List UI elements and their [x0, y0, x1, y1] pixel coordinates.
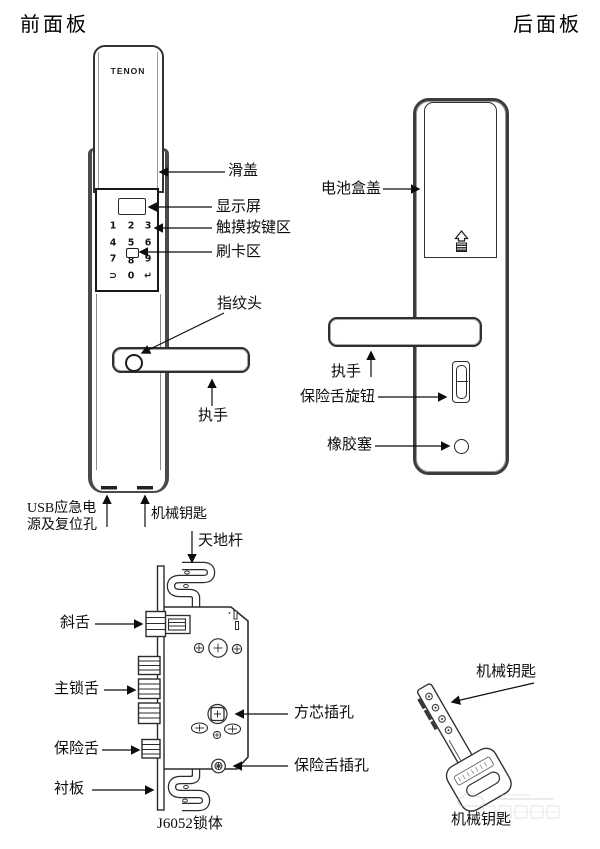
label-fingerprint: 指纹头 — [217, 296, 262, 313]
label-main-bolt: 主锁舌 — [54, 681, 99, 698]
keypad-key: 4 — [110, 238, 117, 249]
label-liner-plate: 衬板 — [54, 781, 84, 798]
heaven-earth-rod-bottom — [172, 766, 206, 807]
back-handle — [328, 317, 482, 347]
safety-knob — [452, 361, 470, 403]
display-screen — [118, 198, 146, 215]
front-plate-inner-line-left — [96, 294, 97, 470]
safety-bolt-hole — [212, 759, 226, 773]
card-icon — [126, 248, 139, 258]
label-safety-bolt-hole: 保险舌插孔 — [294, 758, 369, 775]
latch-bolt — [146, 612, 190, 637]
label-back-handle: 执手 — [331, 364, 361, 381]
keypad-panel: 1 2 3 4 5 6 7 8 9 ⊃ 0 ↵ — [95, 188, 159, 292]
safety-knob-grip — [456, 365, 467, 399]
key-bow-hole — [465, 770, 502, 798]
body-slots — [229, 611, 239, 630]
keypad-key: 9 — [145, 254, 152, 265]
keypad-key: ↵ — [144, 271, 152, 282]
label-slide-cover: 滑盖 — [228, 163, 258, 180]
label-safety-bolt: 保险舌 — [54, 741, 99, 758]
label-latch-bolt: 斜舌 — [60, 615, 90, 632]
front-plate-inner-line-right — [160, 294, 161, 470]
label-usb-line1: USB应急电 — [27, 500, 96, 517]
keypad-key: 7 — [110, 254, 117, 265]
fingerprint-sensor — [125, 354, 143, 372]
main-bolt — [139, 657, 161, 724]
square-core-hole — [208, 705, 227, 724]
key-engraving — [454, 756, 495, 785]
safety-knob-line — [456, 381, 468, 382]
back-panel-title: 后面板 — [513, 8, 582, 37]
brand-logo: TENON — [93, 66, 164, 76]
heaven-earth-rod-top — [171, 566, 211, 609]
label-front-handle: 执手 — [198, 408, 228, 425]
keypad-key: ⊃ — [109, 271, 117, 282]
liner-plate — [158, 566, 165, 810]
safety-bolt — [142, 740, 160, 759]
label-usb-line2: 源及复位孔 — [27, 517, 97, 534]
keypad-key: 0 — [128, 271, 135, 282]
keypad-key: 5 — [128, 238, 135, 249]
label-display: 显示屏 — [216, 199, 261, 216]
label-touch-keys: 触摸按键区 — [216, 220, 291, 237]
label-rubber-plug: 橡胶塞 — [327, 437, 372, 454]
front-panel-title: 前面板 — [20, 8, 89, 37]
lock-body-caption: J6052锁体 — [157, 816, 223, 833]
label-front-mech-key: 机械钥匙 — [151, 506, 207, 523]
manual-diagram-page: 前面板 后面板 TENON 1 2 3 4 5 6 7 8 9 ⊃ 0 ↵ — [0, 0, 600, 849]
keypad-key: 6 — [145, 238, 152, 249]
label-heaven-earth-rod: 天地杆 — [198, 533, 243, 550]
label-battery-cover: 电池盒盖 — [321, 181, 381, 198]
mechanical-key — [401, 672, 515, 815]
oval-screws — [192, 723, 241, 739]
label-mech-key: 机械钥匙 — [476, 664, 536, 681]
lock-body — [139, 566, 249, 810]
keypad-key: 1 — [110, 221, 117, 232]
mech-key-caption: 机械钥匙 — [451, 812, 511, 829]
battery-cover — [424, 102, 497, 258]
keypad-key: 2 — [128, 221, 135, 232]
screw-icons — [194, 639, 241, 657]
label-card-area: 刷卡区 — [216, 244, 261, 261]
label-safety-knob: 保险舌旋钮 — [300, 389, 375, 406]
rubber-plug — [454, 439, 469, 454]
label-square-core-hole: 方芯插孔 — [294, 705, 354, 722]
keypad-key: 3 — [145, 221, 152, 232]
